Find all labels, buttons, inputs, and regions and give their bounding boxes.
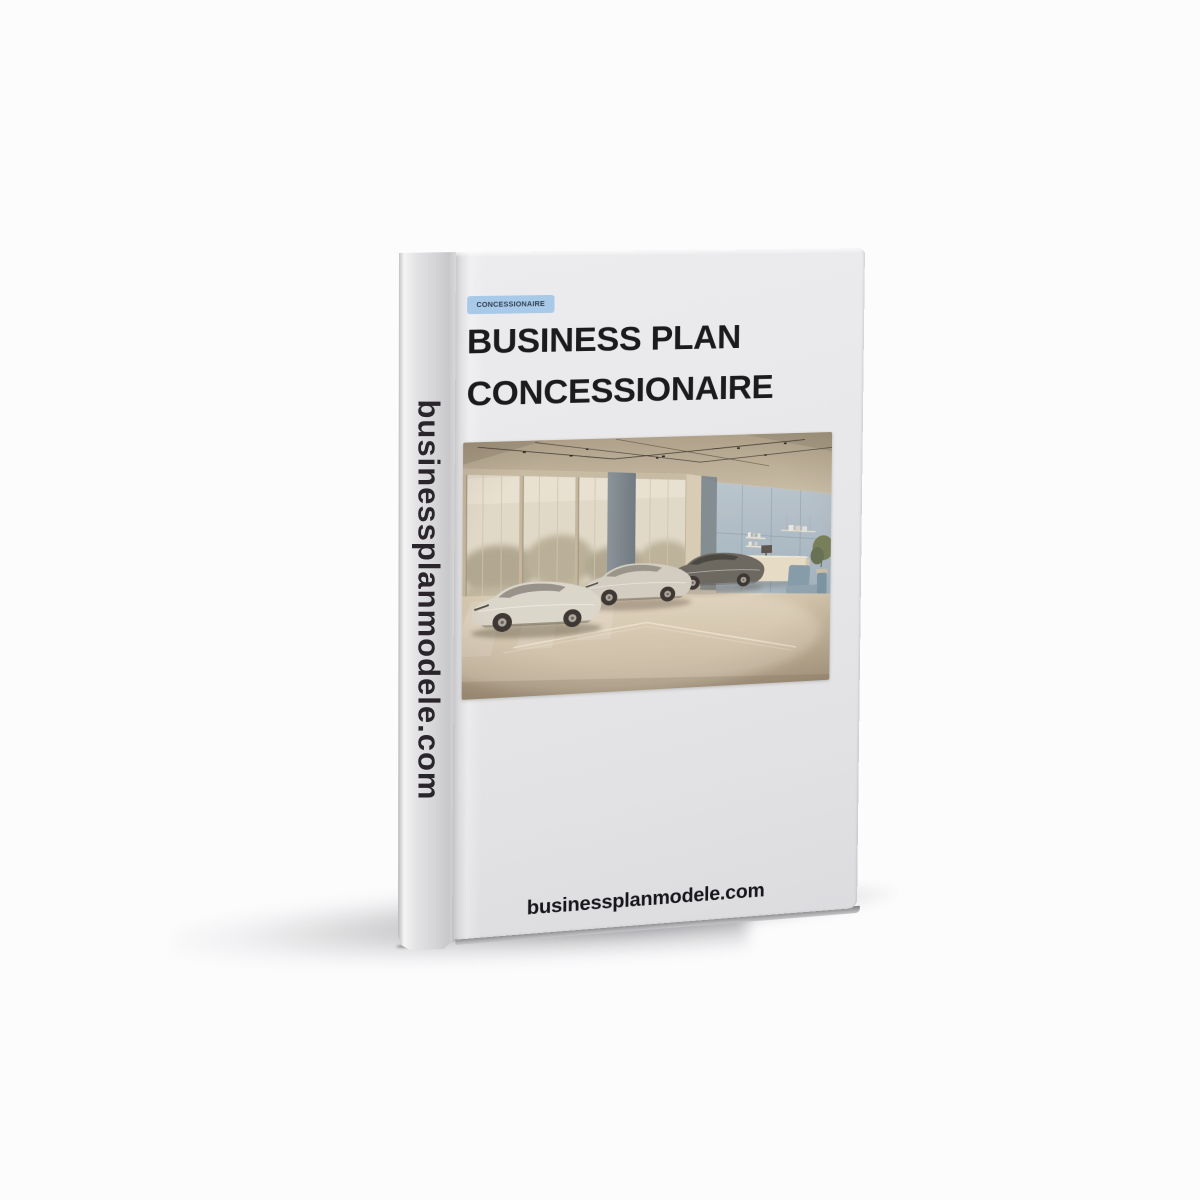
showroom-illustration: [462, 432, 832, 700]
book-spine: businessplanmodele.com: [398, 250, 458, 950]
cover-title-line1: BUSINESS PLAN: [467, 310, 856, 369]
book-mockup-scene: businessplanmodele.com CONCESSIONAIRE BU…: [0, 0, 1200, 1200]
category-badge: CONCESSIONAIRE: [467, 295, 554, 314]
cover-image-showroom: [462, 432, 832, 700]
book-cover: CONCESSIONAIRE BUSINESS PLAN CONCESSIONA…: [452, 248, 865, 940]
spine-title: businessplanmodele.com: [410, 400, 446, 801]
cover-title: BUSINESS PLAN CONCESSIONAIRE: [466, 310, 855, 421]
cover-title-line2: CONCESSIONAIRE: [466, 360, 855, 420]
